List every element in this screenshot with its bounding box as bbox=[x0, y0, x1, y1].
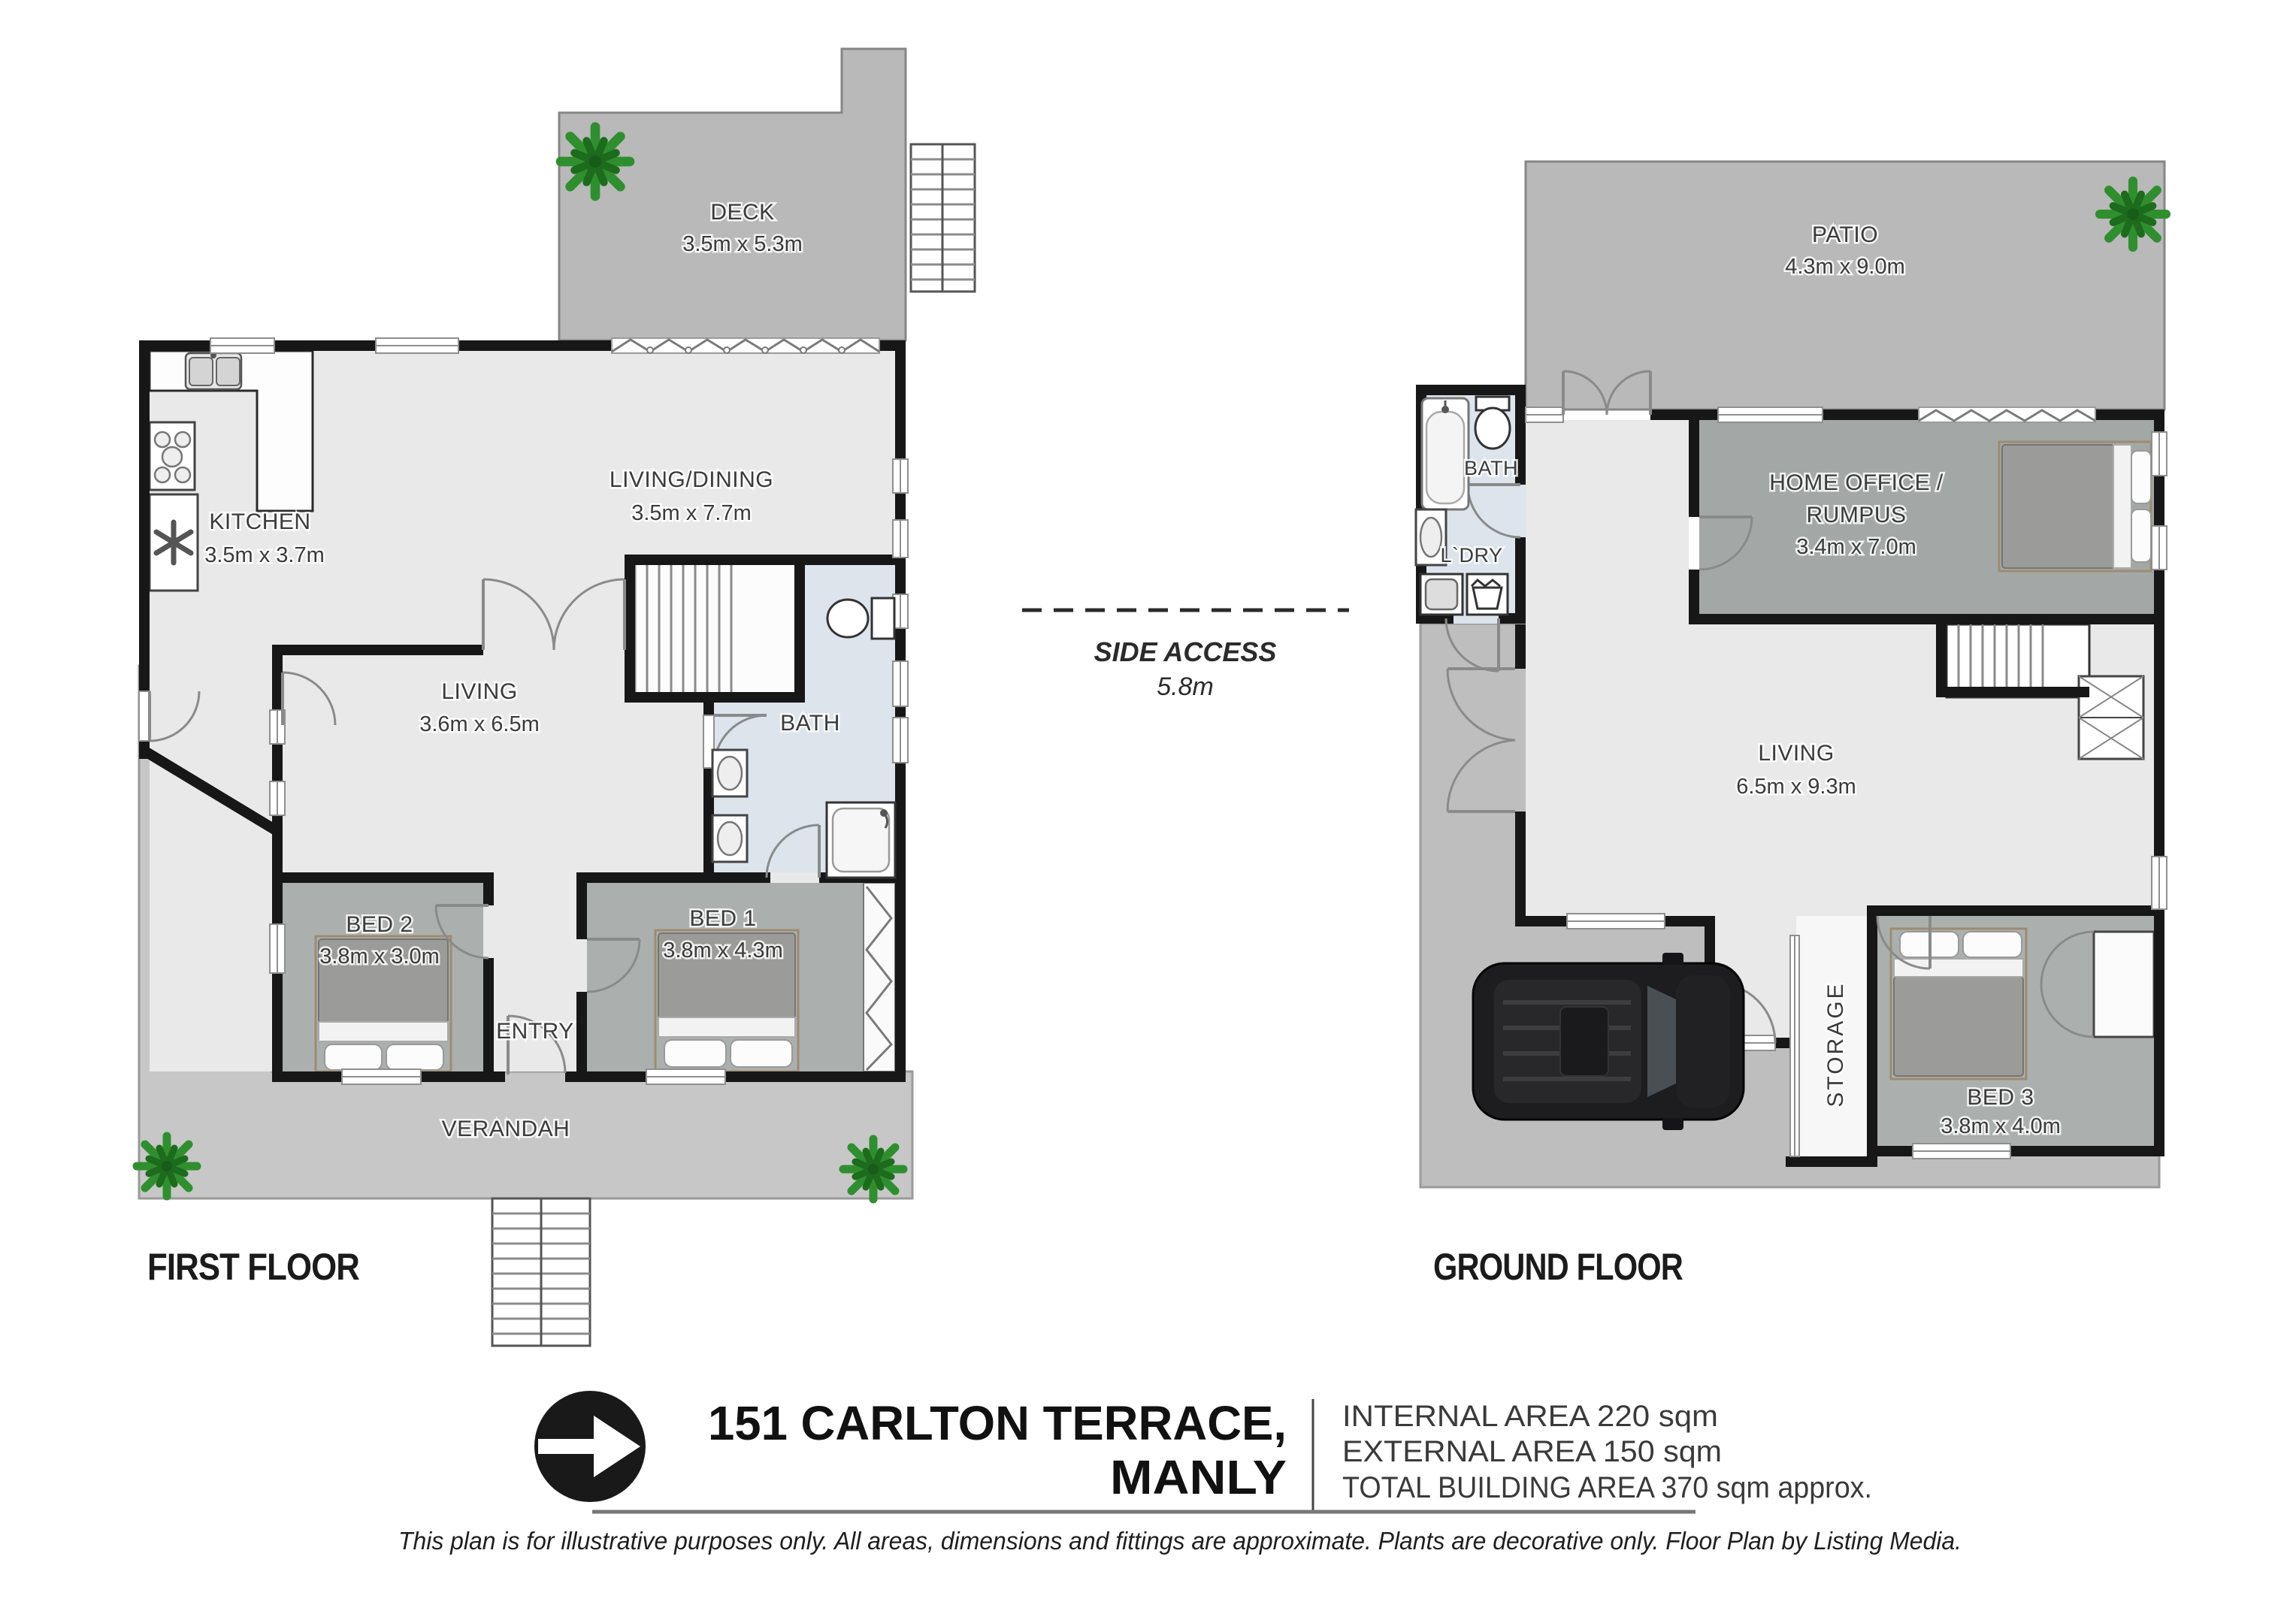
deck-dims: 3.5m x 5.3m bbox=[682, 232, 803, 256]
side-access-dims: 5.8m bbox=[1157, 672, 1214, 701]
first-floor-title: FIRST FLOOR bbox=[147, 1246, 360, 1288]
ground-corridor bbox=[1526, 420, 1689, 624]
wardrobe-icon bbox=[864, 883, 895, 1071]
deck-area bbox=[559, 49, 906, 340]
ground-toilet-icon bbox=[1475, 397, 1510, 449]
patio-area bbox=[1526, 162, 2164, 410]
side-access-label: SIDE ACCESS bbox=[1094, 636, 1277, 667]
living-dims: 3.6m x 6.5m bbox=[419, 712, 540, 736]
bed1-dims: 3.8m x 4.3m bbox=[663, 938, 783, 963]
address-line1: 151 CARLTON TERRACE, bbox=[708, 1396, 1287, 1450]
ground-floor-title: GROUND FLOOR bbox=[1433, 1246, 1683, 1288]
laundry-tub-icon bbox=[1467, 574, 1508, 615]
laundry-label: L`DRY bbox=[1440, 544, 1502, 567]
footer: 151 CARLTON TERRACE, MANLY INTERNAL AREA… bbox=[398, 1391, 1962, 1555]
floor-plan-page: DECK 3.5m x 5.3m LIVING/DINING 3.5m x 7.… bbox=[0, 0, 2296, 1623]
storage-label: STORAGE bbox=[1823, 981, 1848, 1107]
deck-stairs-icon bbox=[911, 144, 975, 292]
arrow-logo-icon bbox=[534, 1391, 646, 1502]
toilet-icon bbox=[827, 598, 894, 639]
bed2-label: BED 2 bbox=[346, 912, 413, 937]
home-office-label-2: RUMPUS bbox=[1806, 503, 1906, 527]
bathtub-icon bbox=[1422, 398, 1469, 509]
verandah-stairs-icon bbox=[492, 1198, 590, 1346]
bed3-bed-icon bbox=[1891, 929, 2026, 1079]
bed2-dims: 3.8m x 3.0m bbox=[319, 944, 440, 969]
ground-stairs-icon bbox=[1947, 624, 2089, 697]
bath-label: BATH bbox=[780, 711, 840, 736]
bed3-label: BED 3 bbox=[1967, 1085, 2034, 1110]
bifold-door-icon bbox=[612, 338, 879, 353]
first-floor-plan: DECK 3.5m x 5.3m LIVING/DINING 3.5m x 7.… bbox=[137, 49, 975, 1346]
car-icon bbox=[1473, 953, 1744, 1130]
kitchen-label: KITCHEN bbox=[209, 509, 310, 534]
address-line2: MANLY bbox=[1110, 1450, 1287, 1504]
stove-icon bbox=[150, 422, 195, 490]
patio-dims: 4.3m x 9.0m bbox=[1785, 255, 1905, 279]
internal-area: INTERNAL AREA 220 sqm bbox=[1342, 1400, 1718, 1433]
home-office-dims: 3.4m x 7.0m bbox=[1796, 535, 1916, 559]
living-label: LIVING bbox=[441, 679, 517, 704]
living-dining-label: LIVING/DINING bbox=[610, 467, 773, 492]
accordion-window-icon bbox=[1919, 407, 2095, 422]
plant-icon bbox=[2100, 181, 2166, 247]
verandah-label: VERANDAH bbox=[442, 1117, 570, 1141]
fridge-icon bbox=[150, 494, 198, 591]
plant-icon bbox=[561, 127, 630, 196]
shower-icon bbox=[827, 802, 895, 878]
kitchen-dims: 3.5m x 3.7m bbox=[204, 543, 325, 567]
home-office-bed-icon bbox=[1999, 442, 2151, 571]
bed1-label: BED 1 bbox=[689, 906, 756, 931]
floor-plan-canvas: DECK 3.5m x 5.3m LIVING/DINING 3.5m x 7.… bbox=[0, 0, 2296, 1623]
bed3-dims: 3.8m x 4.0m bbox=[1941, 1114, 2061, 1138]
plant-icon bbox=[843, 1139, 903, 1199]
living-dining-dims: 3.5m x 7.7m bbox=[631, 501, 752, 525]
plant-icon bbox=[137, 1136, 197, 1196]
disclaimer-text: This plan is for illustrative purposes o… bbox=[398, 1527, 1962, 1555]
ground-living-label: LIVING bbox=[1758, 741, 1834, 766]
external-area: EXTERNAL AREA 150 sqm bbox=[1342, 1435, 1722, 1468]
internal-stairs-icon bbox=[635, 565, 794, 692]
washing-machine-icon bbox=[1420, 574, 1463, 615]
ground-floor-plan: PATIO 4.3m x 9.0m BATH L`DRY HOME OFFICE… bbox=[1416, 162, 2167, 1288]
home-office-label-1: HOME OFFICE / bbox=[1769, 470, 1944, 495]
side-access: SIDE ACCESS 5.8m bbox=[1022, 610, 1349, 701]
kitchen-sink-icon bbox=[186, 352, 241, 389]
ground-bath-label: BATH bbox=[1464, 457, 1518, 479]
entry-label: ENTRY bbox=[496, 1019, 574, 1044]
deck-label: DECK bbox=[710, 200, 774, 225]
total-area: TOTAL BUILDING AREA 370 sqm approx. bbox=[1342, 1471, 1872, 1504]
patio-label: PATIO bbox=[1812, 222, 1878, 247]
ground-living-dims: 6.5m x 9.3m bbox=[1736, 775, 1856, 799]
